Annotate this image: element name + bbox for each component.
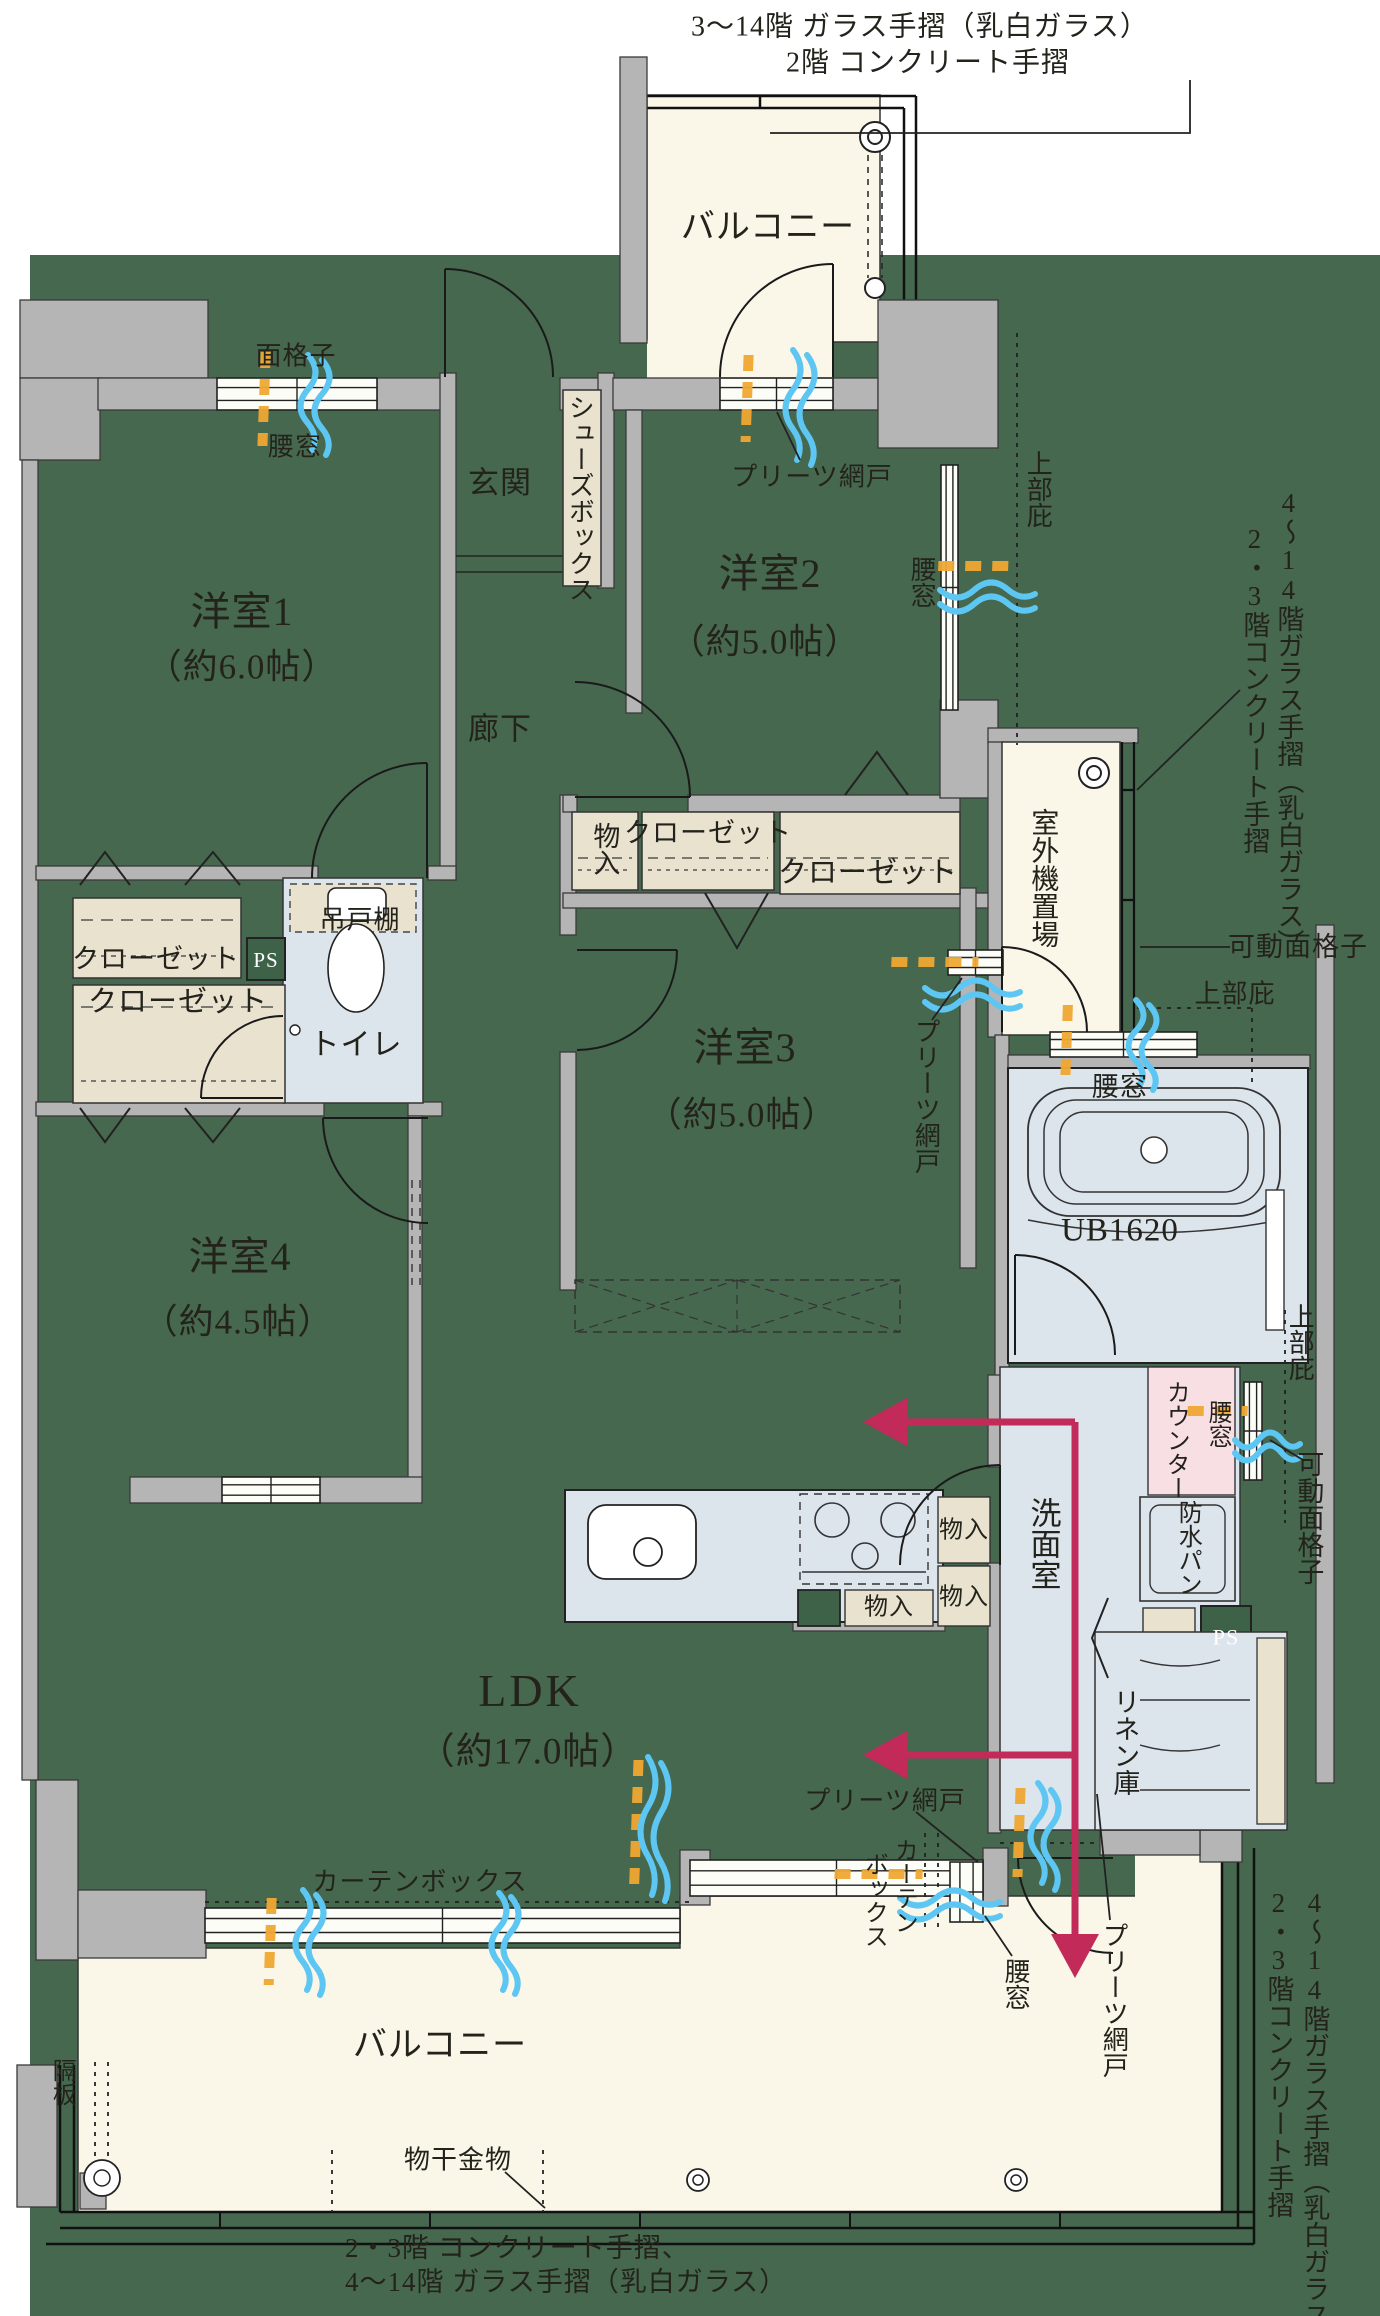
label-pleats-mid: プリーツ網戸 (912, 1018, 939, 1174)
room-yoshitsu1: 洋室1 (191, 591, 294, 633)
room-balcony-bottom: バルコニー (353, 2028, 527, 2064)
note-top-line2: 2階 コンクリート手摺 (786, 48, 1070, 77)
label-koshimado-1: 腰窓 (268, 433, 322, 460)
room-senmen: 洗面室 (1026, 1497, 1059, 1590)
room-genkan: 玄関 (468, 468, 532, 501)
room-yoshitsu3: 洋室3 (694, 1027, 797, 1069)
room-yoshitsu2: 洋室2 (719, 553, 822, 595)
room-yoshitsu4-size: （約4.5帖） (143, 1305, 334, 1342)
monoiri-mid: 物入 (590, 822, 618, 876)
room-gaiki-okiba: 室外機置場 (1028, 808, 1057, 948)
room-yoshitsu4: 洋室4 (189, 1236, 292, 1278)
note-bottom-line2: 4〜14階 ガラス手摺（乳白ガラス） (345, 2268, 787, 2296)
label-curtain-box-h: カーテンボックス (312, 1868, 527, 1895)
fixture-counter: カウンター (1162, 1380, 1187, 1500)
label-curtain-v: カーテン (890, 1838, 915, 1934)
label-joubuhisashi-1: 上部庇 (1194, 980, 1275, 1007)
room-ldk: LDK (478, 1667, 582, 1715)
monoiri-right-1: 物入 (939, 1518, 989, 1543)
label-koshimado-senmen: 腰窓 (1204, 1400, 1229, 1448)
note-right-upper-2: 2・3階コンクリート手摺 (1240, 524, 1268, 854)
note-right-lower-2: 2・3階コンクリート手摺 (1264, 1888, 1292, 2218)
note-bottom-line1: 2・3階 コンクリート手摺、 (345, 2234, 690, 2262)
label-pleats-bottom-right: プリーツ網戸 (1100, 1922, 1127, 2078)
label-koshimado-2: 腰窓 (908, 556, 935, 608)
room-yoshitsu1-size: （約6.0帖） (147, 650, 338, 687)
monoiri-kitchen: 物入 (864, 1595, 914, 1620)
note-right-lower-1: 4〜14階ガラス手摺（乳白ガラス） (1300, 1888, 1328, 2316)
closet-mid-2: クローゼット (778, 858, 958, 888)
monoiri-right-2: 物入 (939, 1585, 989, 1610)
floorplan-drawing (0, 0, 1380, 2316)
note-top-line1: 3〜14階 ガラス手摺（乳白ガラス） (691, 12, 1149, 41)
room-toilet: トイレ (310, 1029, 403, 1061)
label-joubuhisashi-top: 上部庇 (1024, 450, 1051, 528)
ps-left: PS (253, 949, 278, 971)
room-ldk-size: （約17.0帖） (418, 1734, 639, 1773)
label-koshimado-bath: 腰窓 (1092, 1073, 1148, 1101)
fixture-shoesbox: シューズボックス (566, 394, 593, 602)
label-kakuita: 隔板 (48, 2058, 73, 2106)
label-joubuhisashi-2: 上部庇 (1286, 1303, 1313, 1381)
label-koshimado-bottom: 腰窓 (1002, 1958, 1029, 2010)
room-balcony-top: バルコニー (681, 210, 855, 246)
label-pleats-top: プリーツ網戸 (731, 463, 892, 490)
room-yoshitsu2-size: （約5.0帖） (670, 625, 861, 662)
closet-left-2: クローゼット (88, 987, 268, 1017)
floorplan: 3〜14階 ガラス手摺（乳白ガラス） 2階 コンクリート手摺 バルコニー 面格子… (0, 0, 1380, 2316)
label-box-v: ボックス (860, 1852, 885, 1948)
ps-right: PS (1213, 1625, 1239, 1648)
closet-left-1: クローゼット (72, 945, 240, 973)
closet-mid-1: クローゼット (624, 819, 792, 847)
label-pleats-bottom-left: プリーツ網戸 (804, 1787, 965, 1814)
label-mengoshi: 面格子 (255, 342, 336, 369)
room-yoshitsu3-size: （約5.0帖） (647, 1098, 838, 1135)
room-rouka: 廊下 (468, 714, 532, 747)
note-right-upper-1: 4〜14階ガラス手摺（乳白ガラス） (1274, 488, 1302, 956)
label-tsurito-dana: 吊戸棚 (319, 906, 400, 933)
fixture-bousui-pan: 防水パン (1174, 1500, 1199, 1596)
room-ub: UB1620 (1061, 1214, 1179, 1249)
room-linen: リネン庫 (1110, 1688, 1138, 1796)
label-monohoshi: 物干金物 (404, 2146, 512, 2173)
label-kadou-mengoshi-2: 可動面格子 (1294, 1450, 1322, 1585)
